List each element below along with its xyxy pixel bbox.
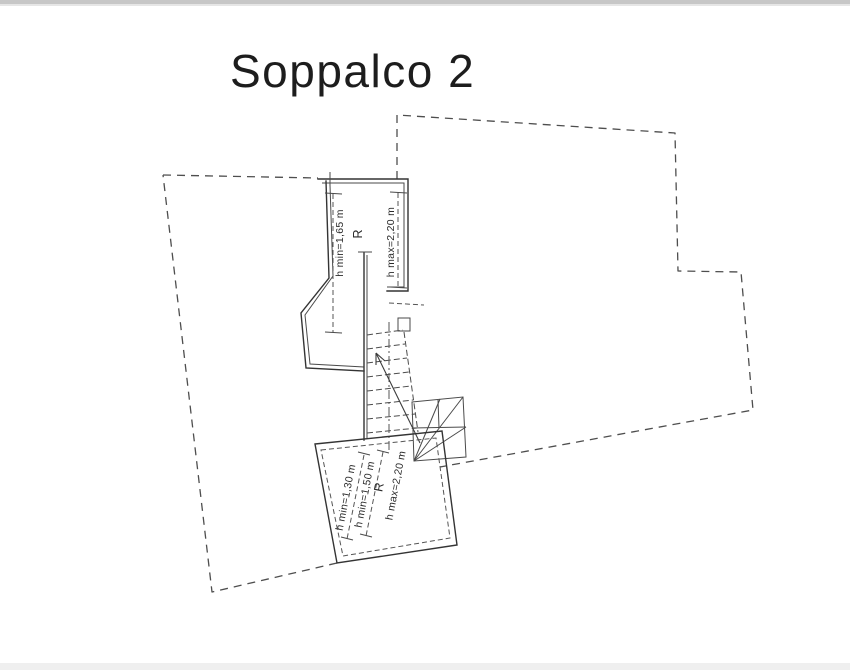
lower-room-outline <box>315 431 457 563</box>
upper-room-label: R <box>351 229 365 238</box>
floorplan-page: Soppalco 2 <box>0 0 850 670</box>
lower-room-label: R <box>371 481 386 493</box>
plan-title: Soppalco 2 <box>230 45 475 97</box>
upper-room-dim-min-label: h min=1,65 m <box>334 209 346 277</box>
boundary-outline <box>163 115 753 592</box>
winder-steps <box>412 397 466 461</box>
upper-room-outline <box>301 172 424 440</box>
lower-room-dim-max-label: h max=2,20 m <box>383 450 408 521</box>
stair-newel <box>398 318 410 331</box>
floorplan-drawing: Soppalco 2 <box>0 0 850 670</box>
upper-room-dim-max-label: h max=2,20 m <box>385 207 397 277</box>
